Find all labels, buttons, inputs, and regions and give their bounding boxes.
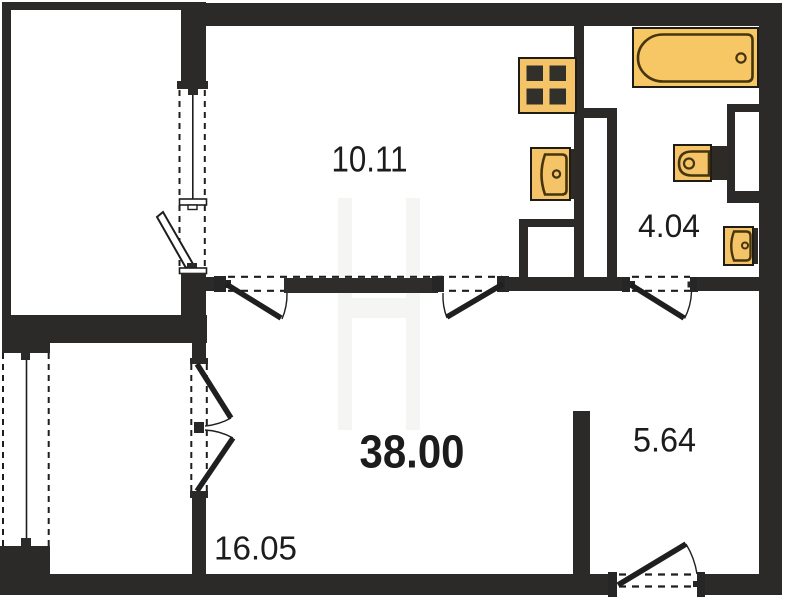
svg-text:10.11: 10.11 <box>332 139 408 180</box>
svg-text:16.05: 16.05 <box>214 530 297 567</box>
svg-text:5.64: 5.64 <box>633 422 696 460</box>
svg-text:38.00: 38.00 <box>360 426 465 478</box>
svg-text:4.04: 4.04 <box>638 208 700 244</box>
